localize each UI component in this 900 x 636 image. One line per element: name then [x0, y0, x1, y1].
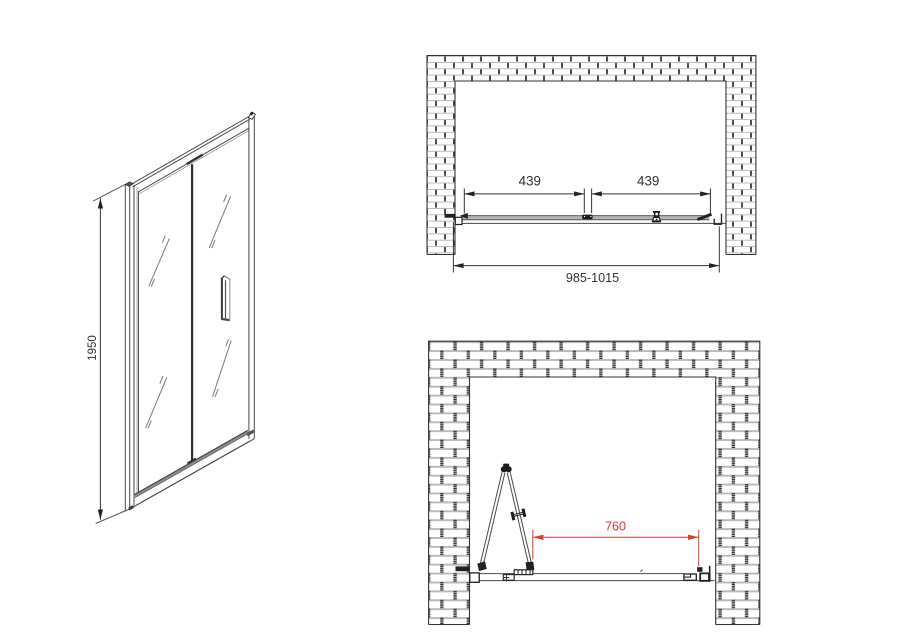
svg-text:760: 760	[605, 520, 626, 534]
svg-text:439: 439	[519, 174, 541, 189]
svg-text:439: 439	[637, 174, 659, 189]
svg-text:985-1015: 985-1015	[566, 271, 619, 285]
svg-text:1950: 1950	[87, 335, 99, 361]
